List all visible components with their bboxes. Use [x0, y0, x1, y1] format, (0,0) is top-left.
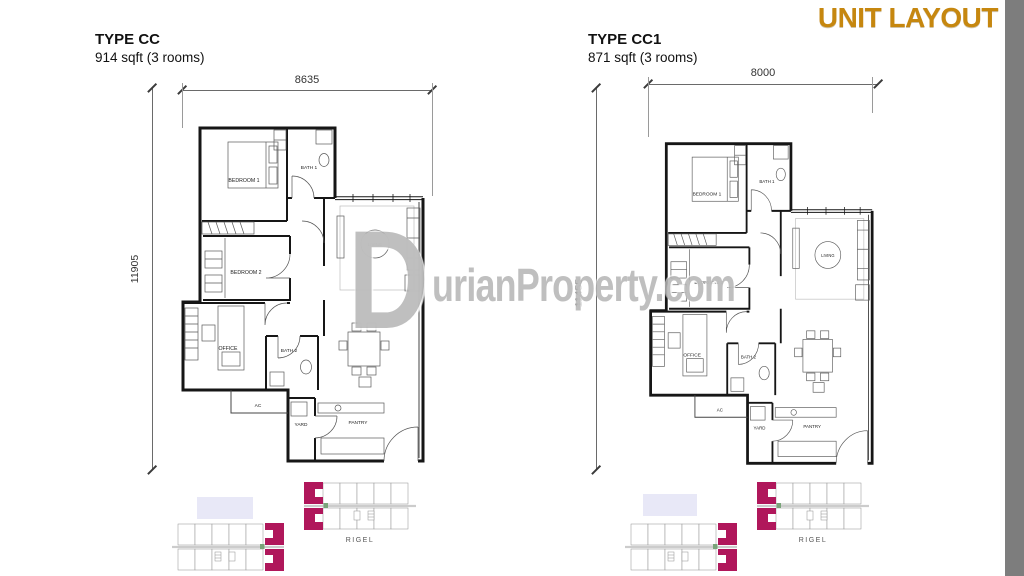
room-label-living-cc1: LIVING [821, 253, 834, 258]
room-label-yard-cc1: YARD [754, 426, 767, 431]
keyplan-core [777, 503, 782, 508]
page-title: UNIT LAYOUT [818, 2, 998, 34]
room-label-yard-cc: YARD [295, 422, 309, 428]
room-label-bath1-cc: BATH 1 [301, 165, 318, 171]
watermark-logo-d: D [348, 225, 429, 334]
room-label-ac-cc1: AC [717, 407, 724, 412]
room-label-bath2-cc: BATH 2 [281, 348, 298, 354]
keyplan-block-1 [197, 497, 253, 519]
keyplan-core [713, 544, 718, 549]
keyplan-building-a1 [170, 521, 286, 573]
unit-cc-type-label: TYPE CC [95, 31, 160, 48]
room-label-bath2-cc1: BATH 2 [741, 355, 757, 360]
highlighted-unit [304, 482, 323, 530]
unit-cc1-type-label: TYPE CC1 [588, 31, 661, 48]
keyplan-building-rigel-1 [302, 480, 418, 532]
room-label-bedroom2-cc: BEDROOM 2 [230, 270, 261, 276]
dim-width-cc: 8635 [262, 74, 352, 86]
highlighted-unit [718, 523, 737, 571]
dim-width-cc1: 8000 [716, 67, 810, 79]
room-label-pantry-cc1: PANTRY [803, 424, 820, 429]
unit-cc1-size-label: 871 sqft (3 rooms) [588, 50, 698, 65]
dim-height-cc: 11905 [129, 249, 143, 289]
side-strip [1005, 0, 1024, 576]
room-label-bedroom1-cc: BEDROOM 1 [228, 178, 259, 184]
unit-layout-page: UNIT LAYOUT TYPE CC 914 sqft (3 rooms) T… [0, 0, 1024, 576]
keyplan-label-rigel-1: RIGEL [320, 537, 400, 544]
keyplan-block-2 [643, 494, 697, 516]
room-label-bedroom1-cc1: BEDROOM 1 [693, 191, 722, 197]
highlighted-unit [757, 482, 776, 530]
keyplan-building-a2 [623, 521, 739, 573]
room-label-pantry-cc: PANTRY [348, 420, 368, 426]
keyplan-building-rigel-2 [755, 480, 871, 532]
room-label-bath1-cc1: BATH 1 [759, 179, 775, 184]
keyplan-core [324, 503, 329, 508]
room-label-ac-cc: AC [255, 403, 262, 409]
highlighted-unit [265, 523, 284, 571]
watermark-text: urianProperty.com [432, 262, 735, 308]
room-label-office-cc1: OFFICE [683, 353, 701, 359]
room-label-office-cc: OFFICE [218, 346, 238, 352]
keyplan-core [260, 544, 265, 549]
keyplan-label-rigel-2: RIGEL [773, 537, 853, 544]
unit-cc-size-label: 914 sqft (3 rooms) [95, 50, 205, 65]
